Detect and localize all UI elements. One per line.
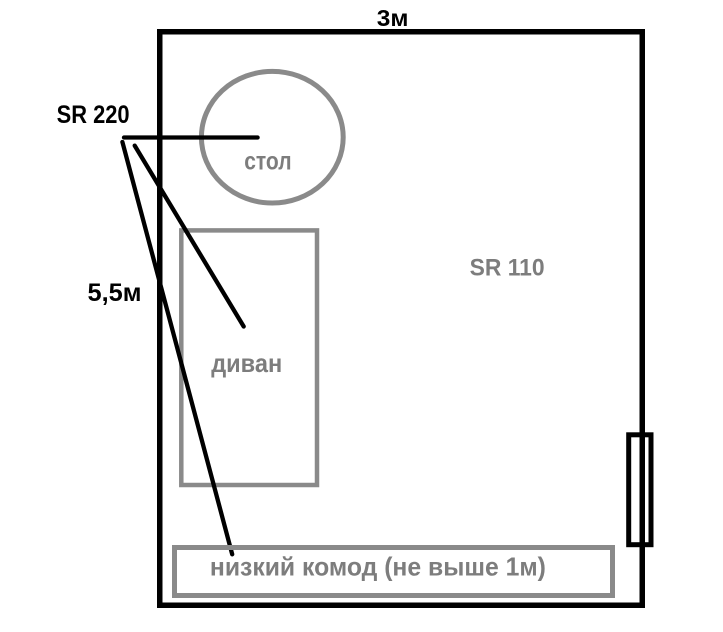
svg-text:SR 220: SR 220	[57, 101, 130, 129]
svg-text:3м: 3м	[377, 5, 409, 31]
svg-text:низкий комод (не выше 1м): низкий комод (не выше 1м)	[210, 551, 546, 581]
svg-text:стол: стол	[244, 148, 291, 176]
svg-text:SR 110: SR 110	[470, 255, 545, 282]
svg-text:5,5м: 5,5м	[88, 279, 142, 307]
svg-text:диван: диван	[211, 348, 282, 378]
